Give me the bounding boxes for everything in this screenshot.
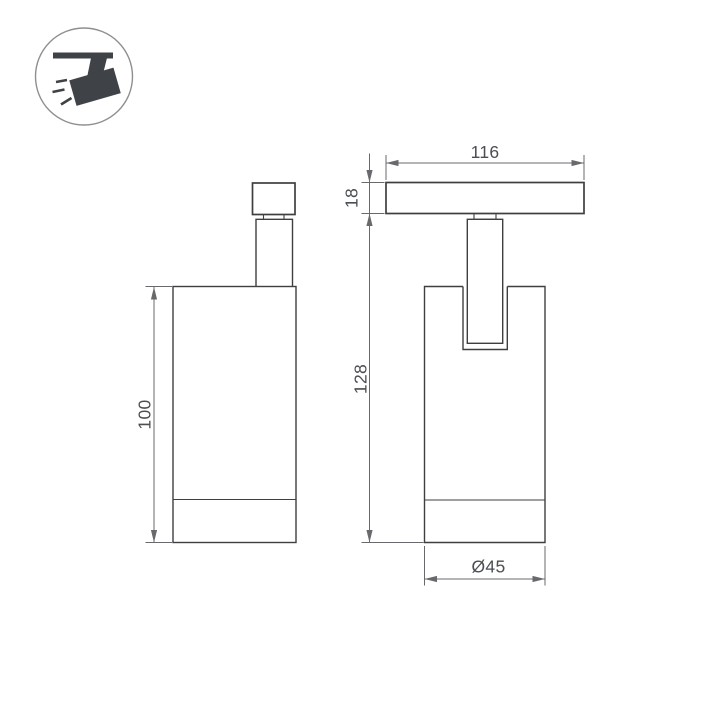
dim-label-track-height: 18 <box>342 188 362 208</box>
icon-track-bar <box>53 53 113 59</box>
dim-label-body-height: 100 <box>135 399 155 429</box>
dim-front-overall-height: 128 <box>351 214 424 543</box>
track-spotlight-icon <box>36 28 133 125</box>
side-view: 100 <box>135 183 297 543</box>
arrow-down-icon <box>366 170 372 183</box>
side-stem <box>256 219 293 286</box>
arrow-down-icon <box>366 530 372 543</box>
front-view: 116 18 128 Ø45 <box>342 142 585 586</box>
dimension-drawing: 100 116 18 <box>0 0 720 720</box>
front-neck <box>474 214 496 220</box>
dim-front-diameter: Ø45 <box>425 546 546 586</box>
arrow-right-icon <box>572 160 585 166</box>
arrow-right-icon <box>533 576 546 582</box>
dim-front-track-width: 116 <box>386 142 584 180</box>
front-track-bar <box>386 183 584 214</box>
side-track-adapter <box>253 183 296 215</box>
side-body <box>173 287 296 543</box>
front-stem <box>467 219 502 343</box>
dim-label-track-width: 116 <box>471 142 500 162</box>
dim-side-body-height: 100 <box>135 287 173 543</box>
dim-label-overall-height: 128 <box>351 364 371 394</box>
arrow-left-icon <box>386 160 399 166</box>
arrow-up-icon <box>151 287 157 300</box>
dim-extension-lines <box>362 183 385 214</box>
dim-front-track-height: 18 <box>342 154 385 227</box>
dim-label-diameter: Ø45 <box>472 557 506 577</box>
arrow-left-icon <box>425 576 438 582</box>
arrow-down-icon <box>151 530 157 543</box>
